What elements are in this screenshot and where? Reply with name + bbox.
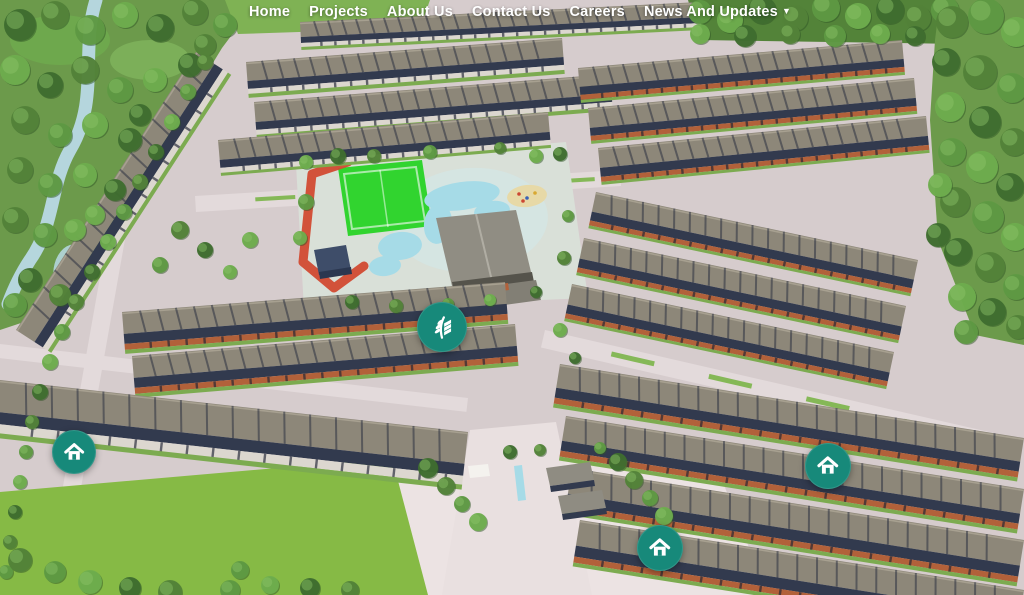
nav-item-label: Projects [309,4,368,20]
map-marker-house-east[interactable] [805,443,851,489]
map-marker-amenities-logo[interactable] [417,302,467,352]
main-nav: HomeProjectsAbout UsContact UsCareersNew… [249,4,791,20]
nav-item-careers[interactable]: Careers [570,4,625,20]
page: HomeProjectsAbout UsContact UsCareersNew… [0,0,1024,595]
nav-item-news-and-updates[interactable]: News And Updates▼ [644,4,791,20]
nav-item-about-us[interactable]: About Us [387,4,453,20]
nav-item-contact-us[interactable]: Contact Us [472,4,551,20]
map-marker-house-west[interactable] [52,430,96,474]
nav-item-label: Home [249,4,290,20]
house-icon [814,452,842,480]
nav-item-label: About Us [387,4,453,20]
nav-item-home[interactable]: Home [249,4,290,20]
nav-item-label: News And Updates [644,4,778,20]
masterplan-render [0,0,1024,595]
nav-item-projects[interactable]: Projects [309,4,368,20]
map-marker-house-south[interactable] [637,525,683,571]
chevron-down-icon: ▼ [782,6,791,16]
house-icon [646,534,674,562]
house-icon [61,439,87,465]
nav-item-label: Contact Us [472,4,551,20]
nav-item-label: Careers [570,4,625,20]
leaf-logo-icon [426,311,458,343]
